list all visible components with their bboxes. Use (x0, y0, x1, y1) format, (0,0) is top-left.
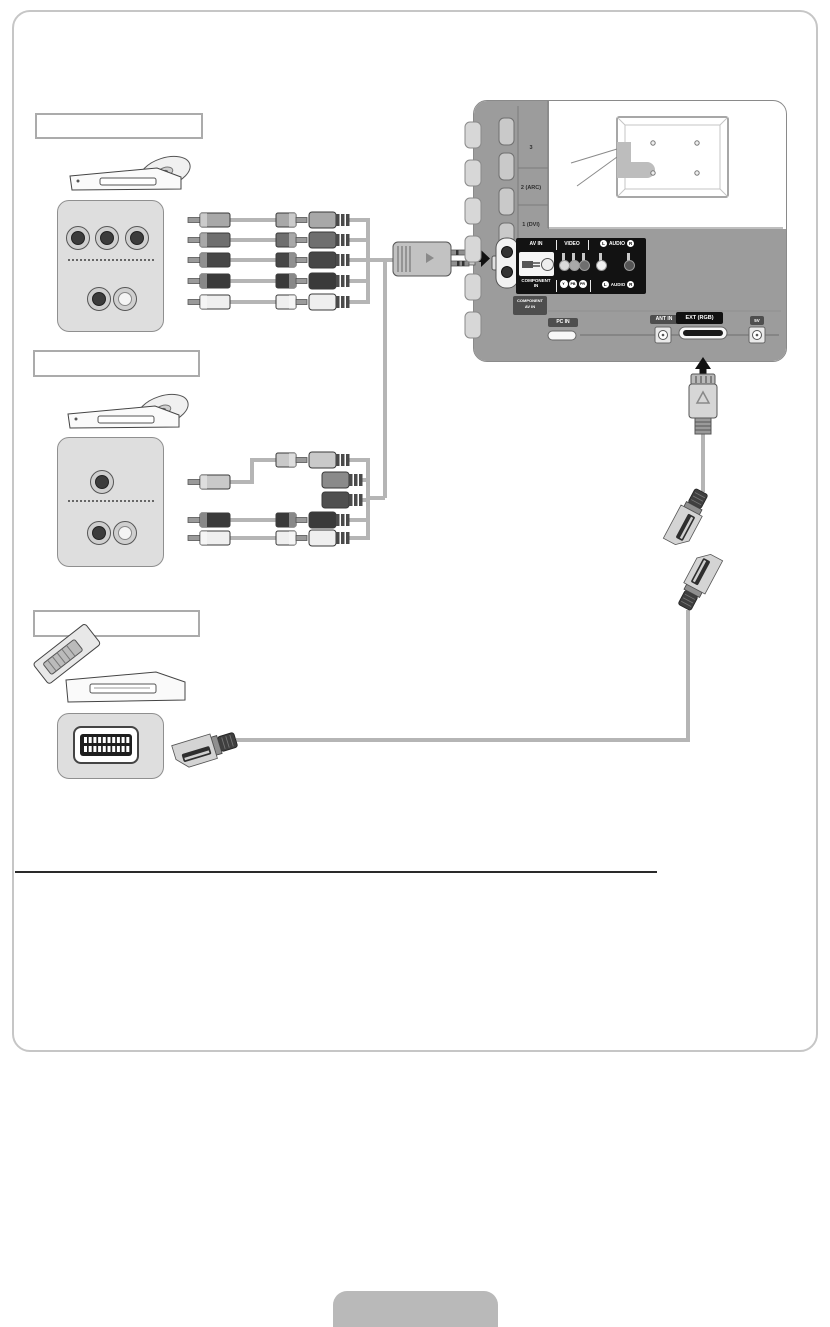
component-av-in-badge: COMPONENT AV IN (513, 296, 547, 315)
jack-audio-l (87, 521, 111, 545)
audio-r-badge: R (627, 240, 634, 247)
section-label-component (35, 113, 203, 139)
audio-top-label: L AUDIO R (588, 240, 646, 247)
jack-pr (66, 226, 90, 250)
section-divider (15, 871, 657, 873)
av-plug-graphic (519, 252, 554, 276)
video-label: VIDEO (556, 241, 588, 247)
video-jack-icon (569, 260, 580, 271)
ant-in-badge: ANT IN (650, 315, 678, 324)
component-in-label: COMPONENT IN (516, 278, 556, 289)
manual-page: 3 2 (ARC) 1 (DVI) AV IN VIDEO L AUDIO R (0, 0, 830, 1327)
tv-back-corner (473, 100, 787, 362)
audio-jack-icon (596, 260, 607, 271)
component-output-panel (57, 200, 164, 332)
av-component-input-panel: AV IN VIDEO L AUDIO R COMPONENT IN (516, 238, 646, 294)
page-nav-pill[interactable] (333, 1291, 498, 1327)
audio-jack-icon (624, 260, 635, 271)
hdmi-label-3: 3 (515, 145, 547, 151)
jack-y (125, 226, 149, 250)
jack-audio-r (113, 287, 137, 311)
video-jack-icon (559, 260, 570, 271)
panel-divider (68, 500, 154, 502)
video-jack-icon (579, 260, 590, 271)
jack-pb (95, 226, 119, 250)
audio-l-badge: L (600, 240, 607, 247)
audio-bottom-label: L AUDIO R (590, 281, 646, 288)
jack-video (90, 470, 114, 494)
jack-audio-l (87, 287, 111, 311)
av-in-label: AV IN (516, 241, 556, 247)
hdmi-label-1dvi: 1 (DVI) (515, 222, 547, 228)
pc-in-badge: PC IN (548, 318, 578, 327)
section-label-scart (33, 610, 200, 637)
ext-rgb-badge: EXT (RGB) (676, 312, 723, 324)
ypbpr-label: Y PB PR (556, 280, 590, 288)
section-label-av (33, 350, 200, 377)
aux-port-badge: 5V (750, 316, 764, 325)
scart-output-panel (57, 713, 164, 779)
composite-output-panel (57, 437, 164, 567)
hdmi-label-2arc: 2 (ARC) (515, 185, 547, 191)
panel-divider (68, 259, 154, 261)
jack-audio-r (113, 521, 137, 545)
